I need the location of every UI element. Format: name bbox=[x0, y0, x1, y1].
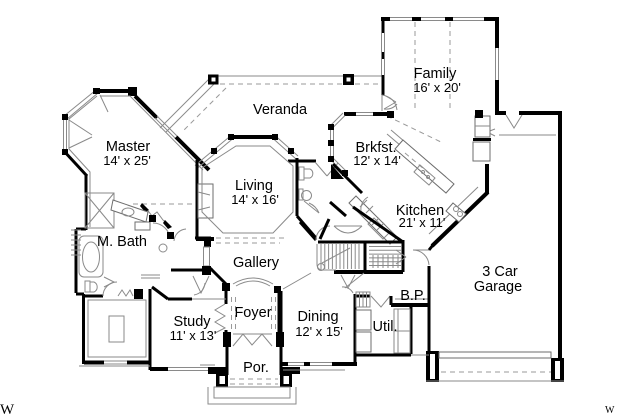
svg-text:11' x 13': 11' x 13' bbox=[170, 328, 217, 343]
svg-text:Veranda: Veranda bbox=[253, 102, 308, 118]
svg-text:12' x 15': 12' x 15' bbox=[295, 324, 343, 339]
svg-text:Garage: Garage bbox=[474, 279, 522, 295]
svg-text:Foyer: Foyer bbox=[234, 305, 271, 321]
svg-text:B.P.: B.P. bbox=[400, 288, 426, 304]
svg-text:W: W bbox=[605, 405, 615, 415]
svg-text:14' x 25': 14' x 25' bbox=[103, 153, 151, 168]
svg-text:12' x 14': 12' x 14' bbox=[353, 153, 401, 168]
svg-text:Util.: Util. bbox=[373, 319, 398, 335]
svg-text:M. Bath: M. Bath bbox=[97, 234, 147, 250]
svg-text:W: W bbox=[0, 402, 15, 415]
svg-text:16' x 20': 16' x 20' bbox=[413, 80, 461, 95]
svg-text:14' x 16': 14' x 16' bbox=[231, 192, 279, 207]
svg-text:Dining: Dining bbox=[297, 309, 338, 325]
svg-text:Por.: Por. bbox=[243, 360, 269, 376]
svg-text:Gallery: Gallery bbox=[233, 255, 280, 271]
svg-text:3 Car: 3 Car bbox=[482, 264, 518, 280]
svg-text:21' x 11': 21' x 11' bbox=[399, 215, 446, 230]
